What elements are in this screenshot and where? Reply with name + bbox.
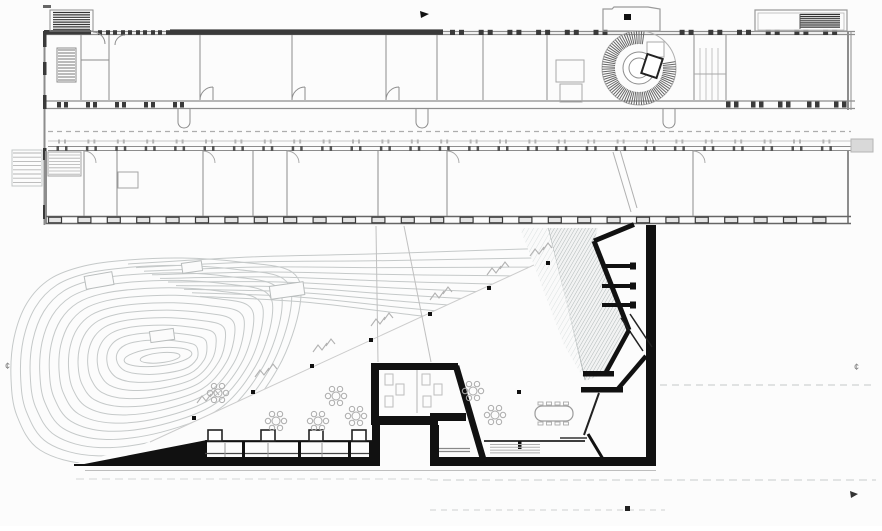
- svg-text:¢: ¢: [5, 361, 10, 371]
- svg-text:¢: ¢: [854, 362, 859, 372]
